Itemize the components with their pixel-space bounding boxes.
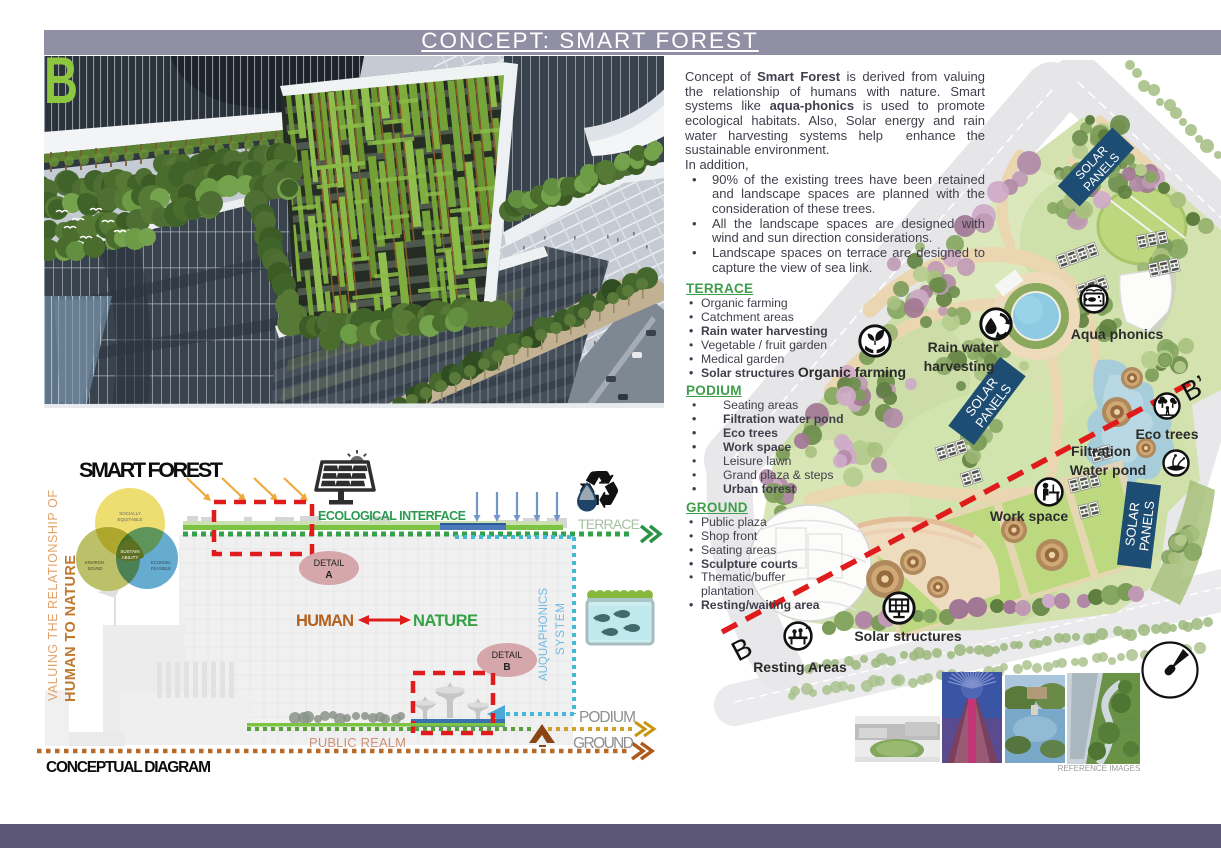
svg-text:CONCEPTUAL DIAGRAM: CONCEPTUAL DIAGRAM: [46, 759, 211, 776]
svg-text:B: B: [503, 662, 510, 673]
svg-text:ECOLOGICAL INTERFACE: ECOLOGICAL INTERFACE: [318, 509, 466, 523]
svg-text:A: A: [325, 570, 332, 581]
svg-text:SOUND: SOUND: [87, 566, 102, 571]
svg-text:HUMAN TO NATURE: HUMAN TO NATURE: [63, 555, 79, 702]
svg-text:NATURE: NATURE: [413, 612, 478, 630]
svg-text:DETAIL: DETAIL: [314, 558, 345, 568]
svg-text:HUMAN: HUMAN: [296, 612, 354, 630]
svg-text:SUSTAIN: SUSTAIN: [120, 549, 139, 554]
svg-text:SYSTEM: SYSTEM: [555, 603, 567, 655]
svg-text:PODIUM: PODIUM: [579, 709, 636, 726]
svg-text:GROUND: GROUND: [573, 735, 634, 752]
svg-text:AUQUAPHONICS: AUQUAPHONICS: [538, 588, 550, 681]
svg-text:EQUITABLE: EQUITABLE: [118, 517, 143, 522]
svg-text:VALUING THE RELATIONSHIP OF: VALUING THE RELATIONSHIP OF: [46, 490, 60, 701]
svg-text:FEASIBLE: FEASIBLE: [151, 566, 171, 571]
svg-text:TERRACE: TERRACE: [578, 516, 640, 532]
svg-text:DETAIL: DETAIL: [492, 650, 523, 660]
svg-text:PUBLIC REALM: PUBLIC REALM: [309, 735, 406, 750]
svg-text:ENVIRON.: ENVIRON.: [85, 560, 105, 565]
svg-text:ECONOM.: ECONOM.: [151, 560, 171, 565]
svg-text:SMART FOREST: SMART FOREST: [79, 458, 223, 482]
svg-text:B: B: [44, 56, 78, 117]
svg-text:ABILITY: ABILITY: [122, 555, 139, 560]
svg-text:SOCIALLY: SOCIALLY: [119, 511, 141, 516]
